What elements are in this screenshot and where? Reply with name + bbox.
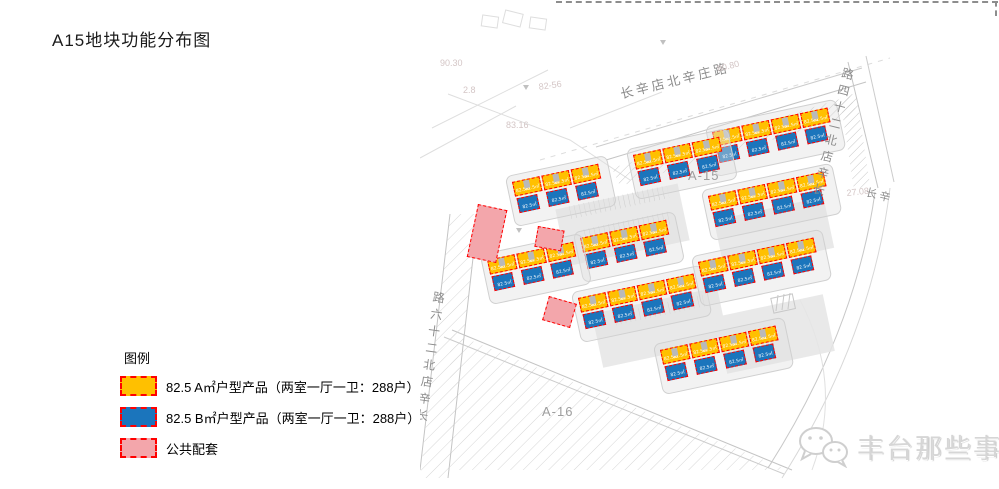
unit-type-b-block: 82.5㎡ [713, 208, 737, 227]
unit-area-label: 82.5㎡ [718, 216, 733, 224]
unit-area-label: 82.5㎡ [676, 300, 691, 308]
legend-swatch-type-b [120, 407, 157, 427]
unit-area-label: 82.5㎡ [588, 318, 603, 326]
unit-type-b-block: 82.5㎡ [614, 244, 638, 263]
watermark: 丰台那些事 [795, 424, 999, 468]
public-facility-block [534, 226, 564, 251]
page-title: A15地块功能分布图 [52, 26, 211, 51]
legend-items: 82.5 A㎡户型产品（两室一厅一卫：288户）82.5 B㎡户型产品（两室一厅… [120, 376, 420, 458]
unit-area-label: 82.5㎡ [767, 270, 782, 278]
unit-type-b-block: 82.5㎡ [761, 262, 785, 281]
legend-item-type-a: 82.5 A㎡户型产品（两室一厅一卫：288户） [120, 376, 420, 396]
unit-type-b-block: 82.5㎡ [521, 266, 545, 285]
unit-type-b-block: 82.5㎡ [791, 255, 815, 274]
site-plan-map: 82.5㎡82.5㎡82.5㎡82.5㎡82.5㎡82.5㎡82.5㎡82.5㎡… [420, 0, 895, 480]
unit-area-label: 82.5㎡ [747, 210, 762, 218]
unit-type-b-block: 82.5㎡ [575, 182, 599, 201]
unit-type-b-block: 82.5㎡ [517, 194, 541, 213]
unit-type-b-block: 82.5㎡ [723, 350, 747, 369]
unit-area-label: 82.5㎡ [581, 190, 596, 198]
top-dashed-border-stub [995, 1, 997, 16]
legend-swatch-public [120, 438, 157, 458]
unit-type-b-block: 82.5㎡ [732, 268, 756, 287]
unit-type-b-block: 82.5㎡ [492, 272, 516, 291]
unit-area-label: 82.5㎡ [590, 258, 605, 266]
building-row: 82.5㎡82.5㎡82.5㎡82.5㎡82.5㎡82.5㎡82.5㎡82.5㎡… [487, 241, 582, 293]
legend-item-label: 82.5 B㎡户型产品（两室一厅一卫：288户） [166, 408, 420, 427]
wechat-logo-icon [795, 424, 851, 468]
unit-area-label: 82.5㎡ [796, 264, 811, 272]
unit-area-label: 82.5㎡ [649, 246, 664, 254]
unit-type-b-block: 82.5㎡ [583, 310, 607, 329]
unit-area-label: 82.5㎡ [777, 204, 792, 212]
unit-area-label: 82.5㎡ [617, 312, 632, 320]
elevation-label: 2.8 [463, 85, 476, 95]
unit-area-label: 82.5㎡ [729, 358, 744, 366]
legend: 图例 82.5 A㎡户型产品（两室一厅一卫：288户）82.5 B㎡户型产品（两… [120, 348, 420, 469]
unit-area-label: 82.5㎡ [781, 140, 796, 148]
unit-area-label: 82.5㎡ [556, 268, 571, 276]
unit-type-b-block: 82.5㎡ [671, 291, 695, 310]
unit-type-b-block: 82.5㎡ [638, 167, 662, 186]
legend-item-label: 公共配套 [166, 439, 218, 458]
unit-area-label: 82.5㎡ [670, 370, 685, 378]
unit-type-b-block: 82.5㎡ [612, 304, 636, 323]
unit-area-label: 82.5㎡ [758, 352, 773, 360]
unit-area-label: 82.5㎡ [526, 274, 541, 282]
unit-area-label: 82.5㎡ [672, 169, 687, 177]
building-row: 82.5㎡82.5㎡82.5㎡82.5㎡82.5㎡82.5㎡82.5㎡82.5㎡… [580, 219, 675, 271]
unit-type-b-block: 82.5㎡ [641, 298, 665, 317]
unit-type-b-block: 82.5㎡ [550, 260, 574, 279]
watermark-text: 丰台那些事 [857, 427, 999, 466]
legend-header: 图例 [124, 348, 420, 367]
unit-type-b-block: 82.5㎡ [694, 356, 718, 375]
unit-area-label: 82.5㎡ [751, 146, 766, 154]
unit-area-label: 82.5㎡ [708, 282, 723, 290]
unit-area-label: 82.5㎡ [699, 364, 714, 372]
unit-area-label: 82.5㎡ [737, 276, 752, 284]
elevation-label: 90.30 [440, 58, 463, 68]
unit-area-label: 82.5㎡ [619, 252, 634, 260]
unit-type-b-block: 82.5㎡ [665, 362, 689, 381]
unit-type-b-block: 82.5㎡ [546, 188, 570, 207]
unit-type-b-block: 82.5㎡ [753, 343, 777, 362]
plot-label: A-15 [688, 168, 719, 183]
unit-type-b-block: 82.5㎡ [703, 274, 727, 293]
legend-item-type-b: 82.5 B㎡户型产品（两室一厅一卫：288户） [120, 407, 420, 427]
unit-type-b-block: 82.5㎡ [771, 196, 795, 215]
unit-area-label: 82.5㎡ [522, 202, 537, 210]
unit-area-label: 82.5㎡ [810, 134, 825, 142]
building-row: 82.5㎡82.5㎡82.5㎡82.5㎡82.5㎡82.5㎡82.5㎡82.5㎡… [512, 163, 607, 215]
unit-type-b-block: 82.5㎡ [643, 238, 667, 257]
unit-type-b-block: 82.5㎡ [667, 161, 691, 180]
legend-item-public: 公共配套 [120, 438, 420, 458]
elevation-label: 83.16 [506, 120, 529, 130]
unit-area-label: 82.5㎡ [551, 196, 566, 204]
unit-type-b-block: 82.5㎡ [746, 138, 770, 157]
unit-area-label: 82.5㎡ [497, 280, 512, 288]
unit-area-label: 82.5㎡ [806, 198, 821, 206]
legend-swatch-type-a [120, 376, 157, 396]
unit-area-label: 82.5㎡ [647, 306, 662, 314]
unit-type-b-block: 82.5㎡ [742, 202, 766, 221]
unit-area-label: 82.5㎡ [643, 175, 658, 183]
plot-label: A-16 [542, 404, 573, 419]
legend-item-label: 82.5 A㎡户型产品（两室一厅一卫：288户） [166, 377, 420, 396]
unit-type-b-block: 82.5㎡ [775, 132, 799, 151]
